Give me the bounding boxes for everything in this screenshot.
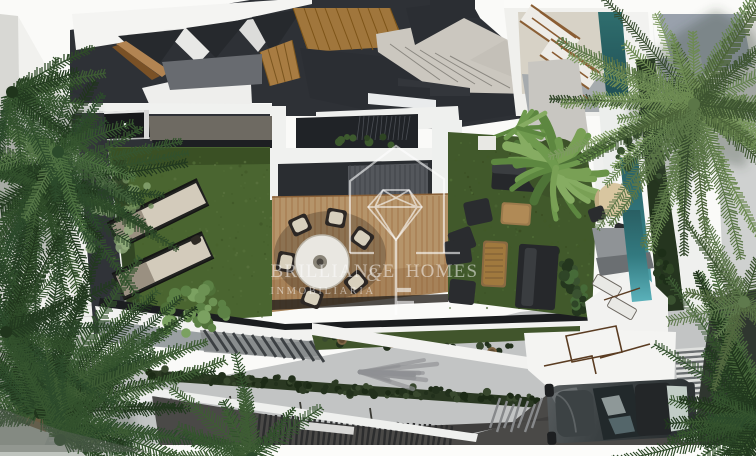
svg-text:HOMES: HOMES (406, 261, 479, 282)
svg-text:&: & (366, 264, 382, 286)
svg-text:INMOBILIARIA: INMOBILIARIA (270, 286, 375, 297)
